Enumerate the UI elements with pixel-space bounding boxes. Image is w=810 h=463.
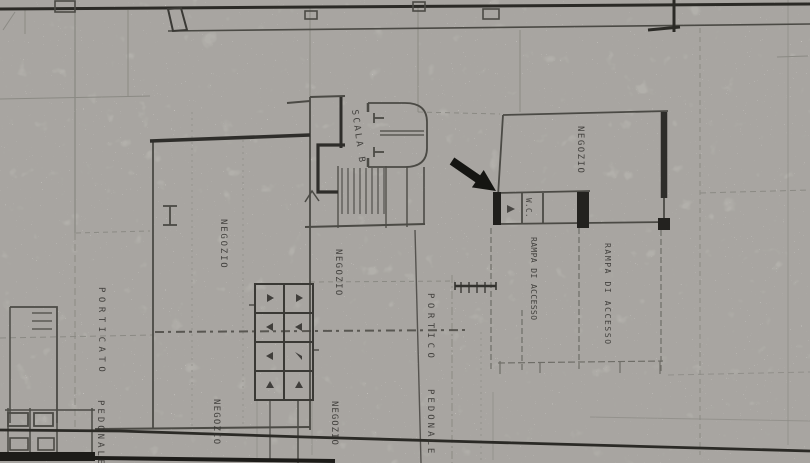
label-negozio-center: NEGOZIO [333, 249, 343, 297]
center-wall-pier [577, 192, 589, 228]
label-pedonale-center: PEDONALE [425, 389, 435, 456]
corner-wall-pier [658, 218, 670, 230]
label-negozio-bottom-left: NEGOZIO [211, 399, 221, 445]
left-wall-pier [493, 192, 501, 225]
label-rampa-accesso-left: RAMPA DI ACCESSO [529, 237, 538, 320]
label-negozio-bottom-center: NEGOZIO [329, 401, 339, 446]
label-pedonale-left: PEDONALE [95, 400, 105, 463]
label-porticato: PORTICATO [96, 287, 106, 376]
label-wc: W.C. [524, 198, 533, 218]
label-negozio-top-right: NEGOZIO [575, 126, 585, 174]
floor-plan-drawing: NEGOZIO W.C. SCALA B NEGOZIO NEGOZIO NEG… [0, 0, 810, 463]
label-negozio-left: NEGOZIO [218, 219, 228, 270]
label-portico-center: PORTICO [425, 293, 435, 362]
label-rampa-accesso-right: RAMPA DI ACCESSO [603, 243, 612, 346]
scanned-floor-plan: NEGOZIO W.C. SCALA B NEGOZIO NEGOZIO NEG… [0, 0, 810, 463]
